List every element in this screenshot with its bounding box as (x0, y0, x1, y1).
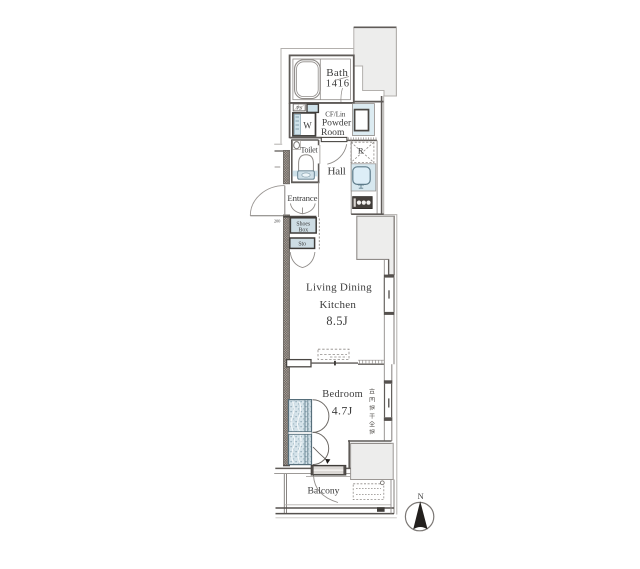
svg-text:8.5J: 8.5J (326, 314, 348, 328)
svg-text:PS: PS (296, 106, 302, 112)
svg-text:Room: Room (321, 127, 345, 138)
svg-text:Bath: Bath (326, 67, 348, 79)
svg-text:200: 200 (274, 219, 280, 224)
svg-text:Entrance: Entrance (287, 193, 317, 203)
svg-text:1416: 1416 (326, 79, 350, 90)
svg-text:Living Dining: Living Dining (306, 282, 372, 294)
svg-text:Kitchen: Kitchen (320, 299, 357, 311)
svg-text:N: N (418, 492, 424, 501)
svg-text:4.7J: 4.7J (332, 404, 353, 418)
svg-text:Bedroom: Bedroom (322, 389, 363, 400)
svg-text:Balcony: Balcony (308, 486, 340, 497)
svg-text:Toilet: Toilet (301, 145, 319, 154)
svg-text:Hall: Hall (328, 165, 346, 177)
svg-text:R: R (358, 146, 364, 156)
svg-text:W: W (303, 120, 312, 130)
svg-text:Sto: Sto (298, 242, 306, 248)
svg-text:Box: Box (298, 227, 308, 233)
